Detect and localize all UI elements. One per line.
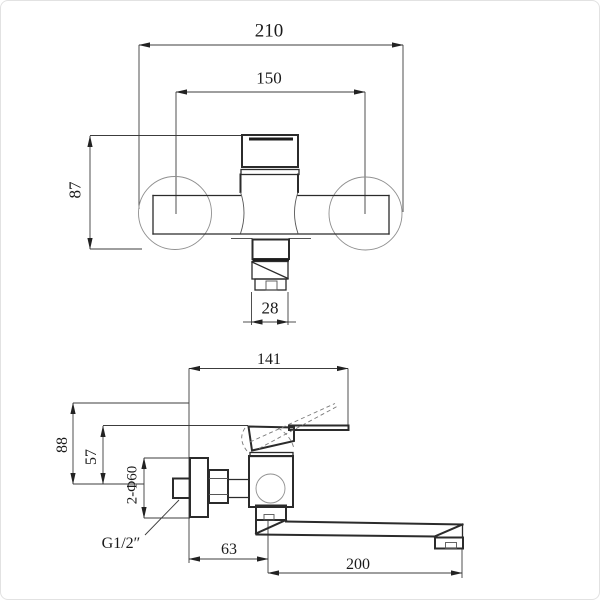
outlet-spout-front	[252, 240, 289, 291]
faucet-drawing	[1, 1, 599, 599]
dim-overall-width-label: 210	[255, 22, 284, 41]
dim-flange-spec-label: 2-Φ60	[126, 466, 141, 504]
cartridge-collar	[241, 170, 299, 175]
dim-body-height-label: 87	[67, 182, 84, 199]
thread-spec-label: G1/2″	[102, 536, 141, 552]
technical-drawing-canvas: 210 150 87 28 141 88 57 2-Φ60 G1/2″ 63 2…	[0, 0, 600, 600]
dim-open-height-label: 88	[55, 437, 71, 453]
dim-closed-height-label: 57	[84, 449, 100, 465]
mounting-nut	[209, 470, 228, 503]
front-dimensions	[90, 45, 403, 325]
spout-side	[256, 506, 463, 538]
wall-flange-right	[329, 177, 402, 250]
cartridge-circle	[256, 474, 285, 503]
dim-handle-reach-label: 141	[257, 352, 281, 368]
dim-spout-length-label: 200	[346, 557, 370, 573]
thread-stub	[173, 479, 190, 499]
valve-body	[249, 453, 293, 508]
front-view	[90, 45, 403, 325]
aerator	[435, 538, 463, 549]
dim-center-distance-label: 150	[256, 70, 282, 87]
wall-flange-left	[139, 177, 212, 250]
escutcheon	[190, 458, 208, 517]
handle-cap	[241, 135, 299, 175]
faucet-front	[139, 135, 403, 290]
dim-outlet-width-label: 28	[262, 300, 279, 317]
handle-lever	[249, 426, 349, 451]
body-bar	[153, 196, 389, 239]
dim-wall-to-axis-label: 63	[221, 542, 237, 558]
body-column	[241, 175, 299, 234]
connection-pipe	[228, 480, 249, 498]
